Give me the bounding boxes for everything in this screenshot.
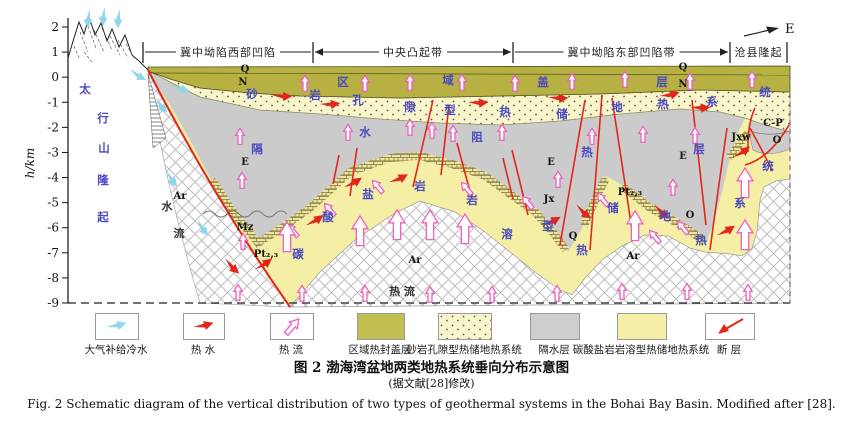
- legend-label: 大气补给冷水: [85, 342, 148, 357]
- layer-name-char: 岩: [308, 88, 321, 102]
- axis-tick-label: -4: [47, 171, 59, 185]
- layer-name-char: 热: [695, 233, 707, 247]
- stratigraphic-label: N: [238, 77, 247, 88]
- axis-tick-label: 2: [51, 20, 59, 34]
- legend-fill-fill-yellow: [618, 314, 666, 339]
- axis-tick-label: -1: [47, 95, 59, 109]
- zone-label: 冀中坳陷西部凹陷: [180, 45, 276, 59]
- layer-name-char: 储: [607, 201, 619, 215]
- cold-water-arrow: [99, 7, 108, 26]
- layer-name-char: 储: [556, 107, 568, 121]
- axis-tick-label: -8: [47, 271, 59, 285]
- legend-swatch-fill-dotted: [438, 313, 492, 340]
- cold-water-arrow: [114, 9, 123, 28]
- stratigraphic-label: Ar: [625, 251, 640, 262]
- layer-name-char: 碳: [292, 247, 304, 261]
- layer-name-char: 山: [98, 141, 110, 155]
- zone-arrow-left: [315, 48, 323, 56]
- zone-arrow-right: [720, 48, 728, 56]
- layer-name-char: 起: [96, 210, 109, 224]
- legend-swatch-arrow-cyan: [95, 313, 139, 340]
- legend-swatch-fill-olive: [357, 313, 405, 340]
- zone-label: 冀中坳陷东部凹陷带: [568, 45, 676, 59]
- legend-item: 碳酸盐岩岩溶型热储地热系统: [617, 313, 665, 340]
- stratigraphic-label: Q: [569, 231, 578, 242]
- axis-tick-label: 0: [51, 70, 59, 84]
- axis-tick-label: 1: [51, 45, 59, 59]
- legend-item: 热 水: [183, 313, 223, 340]
- legend-label: 区域热封盖层: [349, 342, 412, 357]
- axis-tick-label: -2: [47, 120, 59, 134]
- layer-name-char: 盐: [362, 187, 374, 201]
- layer-name-char: 水: [359, 125, 371, 139]
- stratigraphic-label: N: [678, 79, 687, 90]
- layer-name-char: 行: [96, 111, 109, 125]
- geology-layers: [68, 17, 790, 307]
- stratigraphic-label: E: [547, 157, 555, 168]
- legend-item: 断 层: [705, 313, 753, 340]
- layer-name-char: 热: [576, 243, 588, 257]
- legend-label: 砂岩孔隙型热储地热系统: [406, 342, 522, 357]
- layer-name-char: 阻: [471, 130, 483, 144]
- flow-label: 水: [162, 199, 174, 213]
- layer-name-char: 隔: [251, 142, 263, 156]
- compass-east: E: [744, 22, 795, 37]
- stratigraphic-label: Q: [241, 64, 250, 75]
- stratigraphic-label: Ar: [172, 191, 187, 202]
- layer-name-char: 岩: [465, 193, 478, 207]
- stratigraphic-label: O: [773, 135, 782, 146]
- legend: 大气补给冷水热 水热 流区域热封盖层砂岩孔隙型热储地热系统隔水层碳酸盐岩岩溶型热…: [0, 313, 863, 361]
- stratigraphic-label: Jxw: [730, 132, 751, 143]
- legend-label: 断 层: [717, 342, 741, 357]
- stratigraphic-label: Ar: [407, 255, 422, 266]
- legend-fill-fill-gray: [531, 314, 579, 339]
- legend-swatch-fault: [705, 313, 755, 340]
- compass-label: E: [785, 22, 795, 37]
- figure-2: 区域盖层砂岩孔隙型热储地热系统隔水阻热层碳酸盐岩岩溶型热储地热系统太行山隆起QN…: [0, 0, 863, 429]
- layer-name-char: 岩: [413, 179, 426, 193]
- layer-name-char: 隙: [404, 100, 416, 114]
- layer-name-char: 热: [657, 97, 669, 111]
- layer-name-char: 层: [655, 75, 668, 89]
- legend-label: 热 流: [279, 342, 303, 357]
- caption-english: Fig. 2 Schematic diagram of the vertical…: [0, 397, 863, 412]
- cold-water-arrow: [127, 67, 148, 84]
- axis-title: h/km: [23, 148, 37, 178]
- legend-arrow: [106, 318, 128, 333]
- stratigraphic-label: O: [686, 210, 695, 221]
- layer-name-char: 溶: [501, 227, 513, 241]
- layer-name-char: 统: [759, 85, 771, 99]
- axis-tick-label: -3: [47, 145, 59, 159]
- zone-label: 中央凸起带: [383, 46, 443, 59]
- layer-name-char: 型: [542, 219, 554, 233]
- axis-tick-label: -9: [47, 296, 59, 310]
- legend-label: 碳酸盐岩岩溶型热储地热系统: [573, 342, 710, 357]
- mountain-range: [68, 17, 148, 70]
- layer-name-char: 系: [734, 196, 746, 210]
- stratigraphic-label: Pt₂,₃: [254, 249, 278, 260]
- legend-swatch-arrow-pink: [270, 313, 314, 340]
- zone-label: 沧县隆起: [735, 45, 783, 59]
- layer-name-char: 地: [659, 209, 671, 223]
- legend-swatch-fill-yellow: [617, 313, 667, 340]
- captions: 图 2 渤海湾盆地两类地热系统垂向分布示意图 (据文献[28]修改) Fig. …: [0, 360, 863, 412]
- legend-item: 区域热封盖层: [357, 313, 403, 340]
- legend-arrow: [282, 316, 303, 338]
- flow-label: 热 流: [389, 284, 415, 298]
- layer-name-char: 孔: [352, 93, 364, 107]
- layer-name-char: 区: [337, 75, 349, 89]
- legend-swatch-fill-gray: [530, 313, 580, 340]
- layer-name-char: 太: [78, 82, 91, 96]
- axis-tick-label: -6: [47, 221, 59, 235]
- fault-arrowhead: [718, 324, 729, 334]
- layer-name-char: 系: [706, 95, 718, 109]
- legend-arrow: [193, 318, 215, 333]
- legend-fill-fill-olive: [358, 314, 404, 339]
- layer-name-char: 热: [499, 105, 511, 119]
- stratigraphic-label: E: [679, 151, 687, 162]
- legend-item: 大气补给冷水: [95, 313, 137, 340]
- layer-name-char: 盖: [537, 75, 549, 89]
- legend-label: 热 水: [191, 342, 215, 357]
- layer-name-char: 型: [444, 103, 456, 117]
- caption-chinese: 图 2 渤海湾盆地两类地热系统垂向分布示意图: [0, 360, 863, 377]
- compass-arrowhead: [766, 27, 779, 34]
- zone-arrow-right: [503, 48, 511, 56]
- stratigraphic-label: Jx: [543, 194, 556, 205]
- stratigraphic-label: Pt₂,₃: [618, 187, 642, 198]
- legend-item: 热 流: [270, 313, 312, 340]
- layer-name-char: 域: [442, 73, 454, 87]
- legend-item: 隔水层: [530, 313, 578, 340]
- layer-name-char: 层: [692, 142, 705, 156]
- axis-tick-label: -5: [47, 196, 59, 210]
- stratigraphic-label: E: [241, 157, 249, 168]
- cross-section-diagram: 区域盖层砂岩孔隙型热储地热系统隔水阻热层碳酸盐岩岩溶型热储地热系统太行山隆起QN…: [0, 0, 863, 312]
- legend-fill-fill-dotted: [439, 314, 491, 339]
- layer-name-char: 统: [762, 159, 774, 173]
- flow-label: 流: [174, 226, 185, 240]
- stratigraphic-label: Q: [679, 62, 688, 73]
- caption-note: (据文献[28]修改): [0, 377, 863, 391]
- layer-name-char: 隆: [97, 173, 109, 187]
- layer-name-char: 砂: [246, 87, 258, 101]
- legend-swatch-arrow-red: [183, 313, 225, 340]
- axis-tick-label: -7: [47, 246, 59, 260]
- legend-label: 隔水层: [538, 342, 570, 357]
- layer-name-char: 酸: [322, 210, 334, 224]
- stratigraphic-label: Mz: [237, 222, 254, 233]
- layer-name-char: 地: [611, 100, 623, 114]
- legend-item: 砂岩孔隙型热储地热系统: [438, 313, 490, 340]
- stratigraphic-label: C-P: [763, 118, 783, 129]
- layer-name-char: 热: [581, 145, 593, 159]
